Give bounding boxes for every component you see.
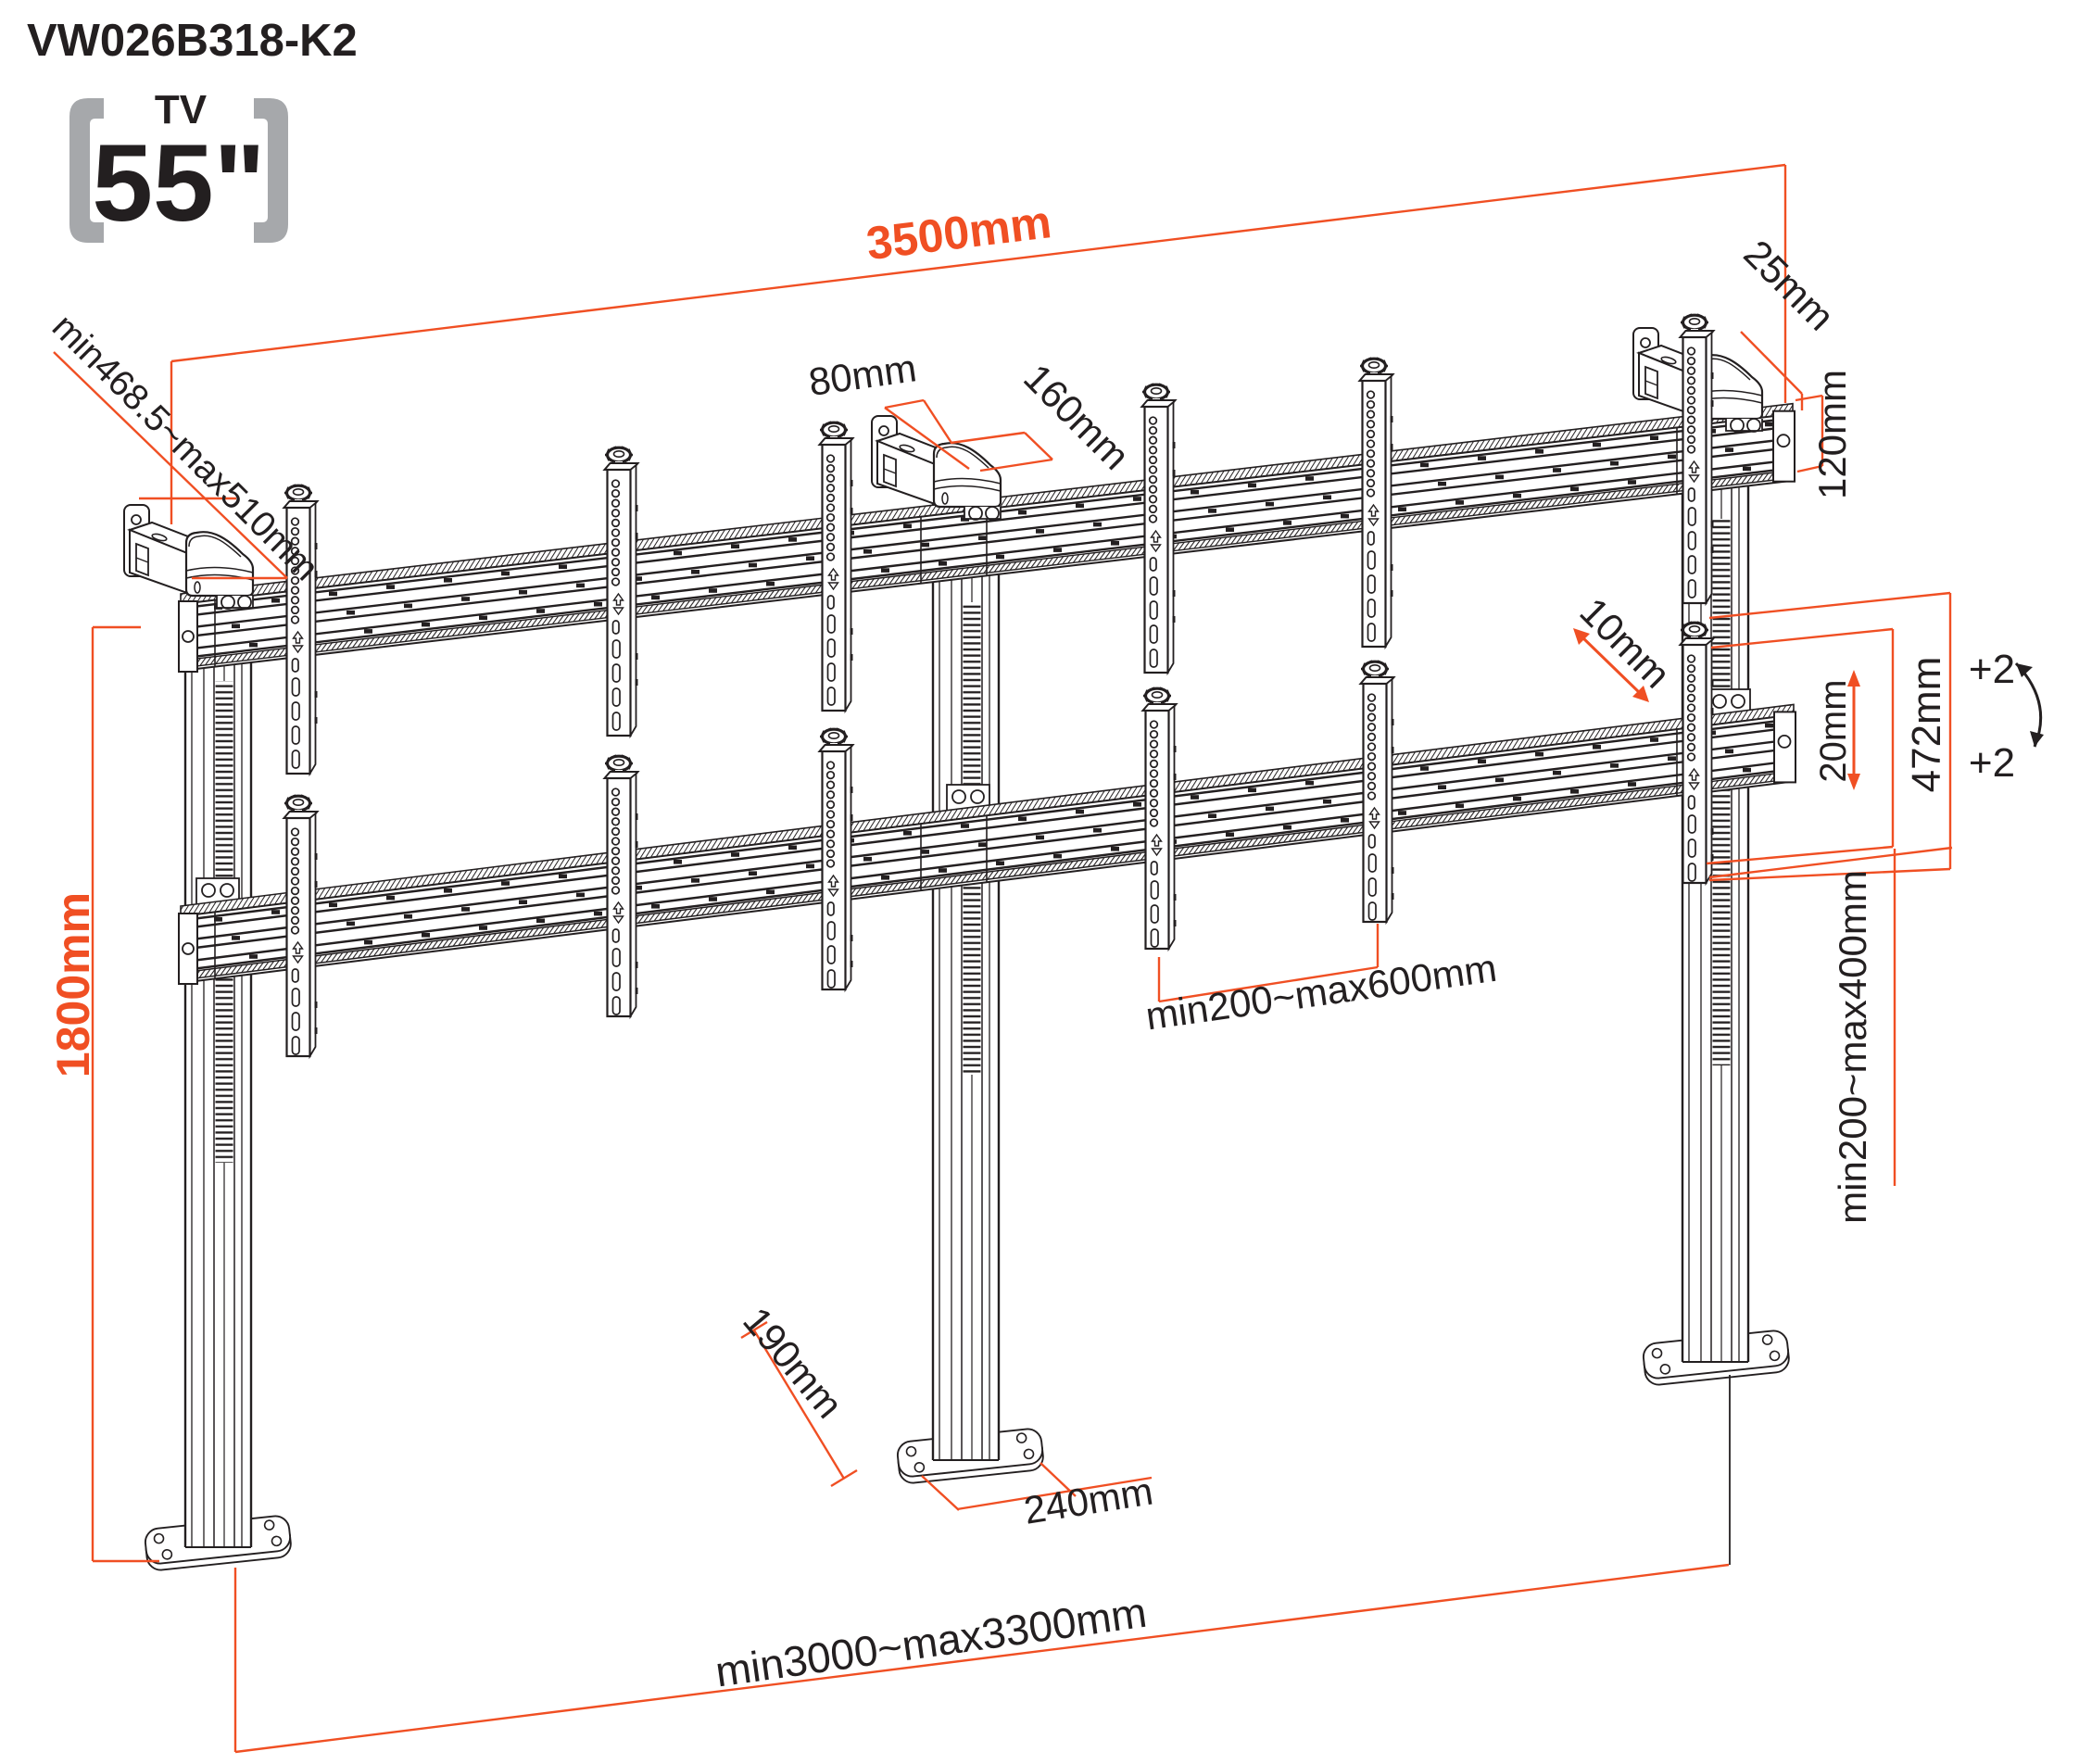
- svg-text:120mm: 120mm: [1810, 370, 1854, 499]
- svg-text:55": 55": [92, 122, 265, 245]
- svg-text:472mm: 472mm: [1904, 657, 1949, 793]
- svg-text:+2: +2: [1969, 740, 2015, 786]
- svg-text:VW026B318-K2: VW026B318-K2: [27, 16, 358, 66]
- svg-text:min200~max400mm: min200~max400mm: [1831, 870, 1874, 1224]
- svg-text:+2: +2: [1969, 647, 2015, 692]
- svg-text:20mm: 20mm: [1813, 679, 1854, 782]
- svg-text:1800mm: 1800mm: [47, 892, 99, 1077]
